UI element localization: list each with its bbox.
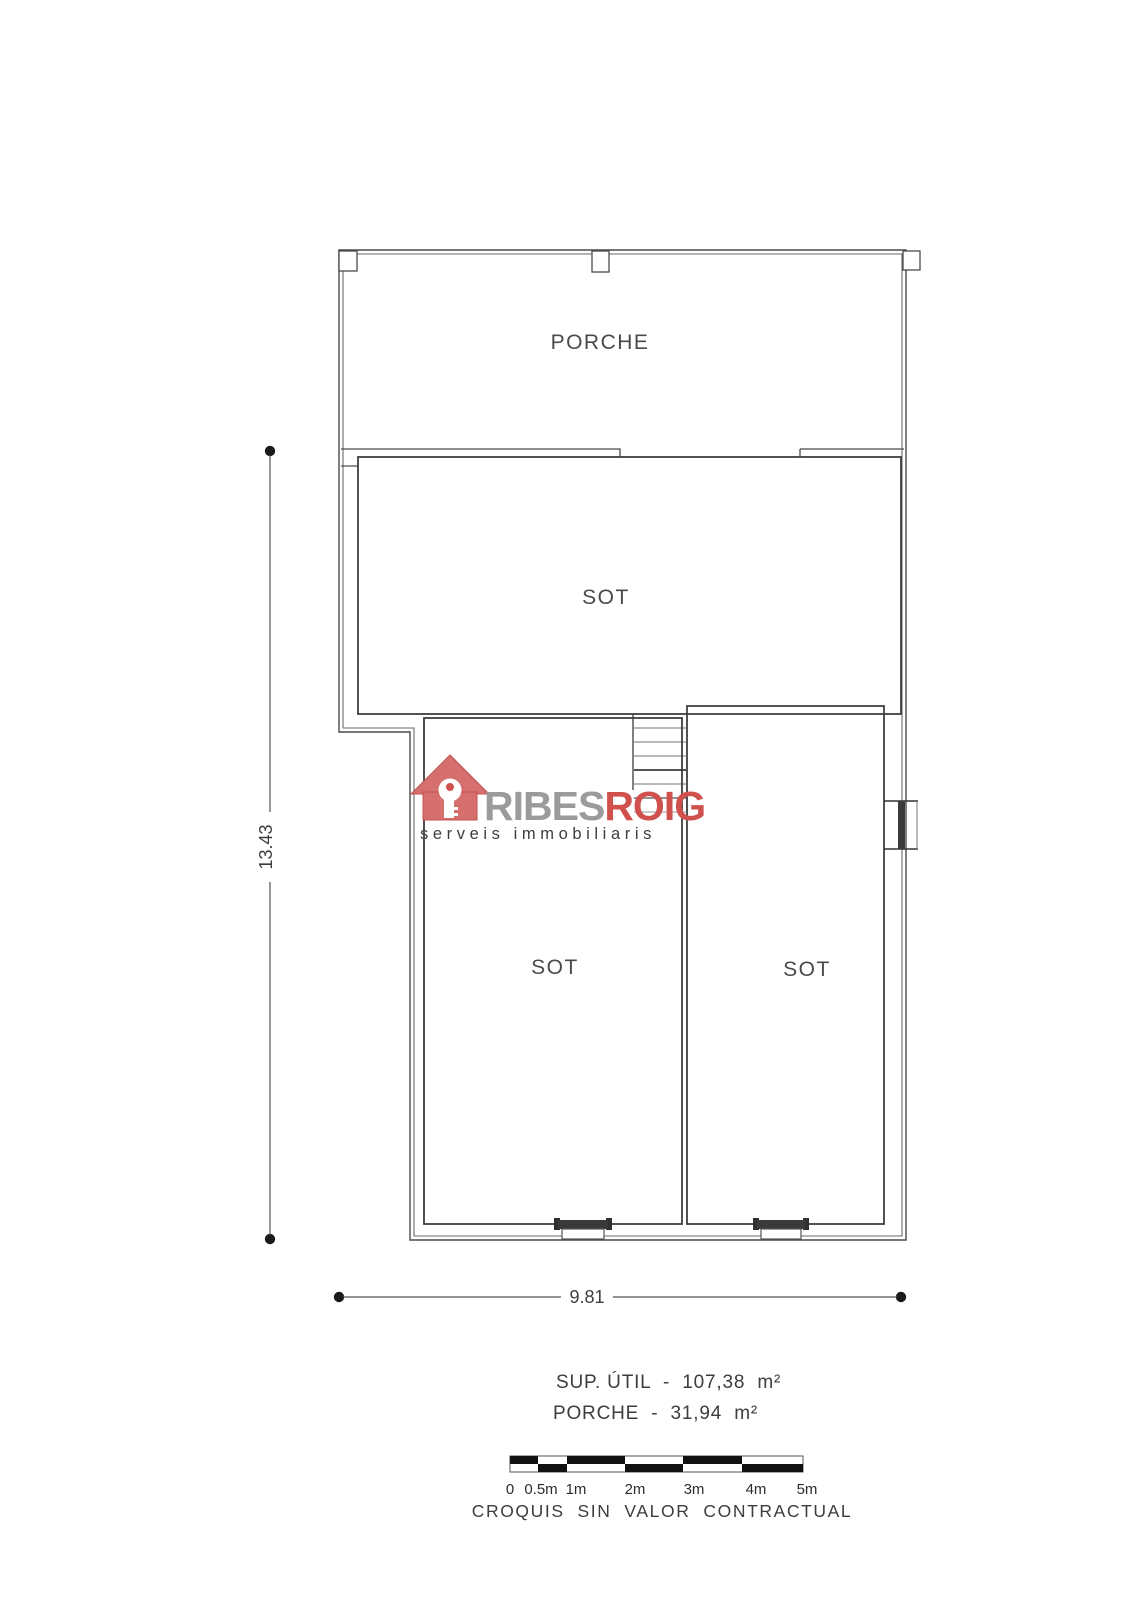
scale-label-05m: 0.5m — [524, 1481, 557, 1498]
scale-bar-segment — [510, 1456, 538, 1464]
brand-text-part2: ROIG — [604, 783, 705, 829]
sot-lower-left-label: SOT — [531, 956, 579, 979]
brand-text-part1: RIBES — [484, 783, 604, 829]
sot-upper-label: SOT — [582, 586, 630, 609]
scale-bar: 0 0.5m 1m 2m 3m 4m 5m — [506, 1456, 818, 1498]
scale-label-5m: 5m — [797, 1481, 818, 1498]
scale-label-1m: 1m — [566, 1481, 587, 1498]
agency-logo: RIBESROIG serveis immobiliaris — [411, 755, 705, 843]
window-right-wall — [884, 801, 918, 849]
scale-label-2m: 2m — [625, 1481, 646, 1498]
scale-bar-segment — [683, 1456, 742, 1464]
disclaimer-text: CROQUIS SIN VALOR CONTRACTUAL — [472, 1501, 853, 1521]
pillar-middle — [592, 251, 609, 272]
porch-label: PORCHE — [551, 331, 650, 354]
pillar-right — [903, 251, 920, 270]
dimension-vertical-value: 13.43 — [256, 824, 276, 869]
outer-wall-inner-line — [343, 254, 902, 1236]
house-key-icon — [411, 755, 489, 820]
window-bottom-left — [554, 1218, 612, 1239]
area-summary-line1: SUP. ÚTIL - 107,38 m² — [556, 1371, 781, 1393]
floor-plan-page: 13.43 9.81 PORCHE SOT SOT SOT RIBESROIG … — [0, 0, 1134, 1600]
area-summary-line2: PORCHE - 31,94 m² — [553, 1403, 758, 1424]
dimension-horizontal-value: 9.81 — [569, 1287, 604, 1307]
pillar-left — [339, 251, 357, 271]
scale-bar-segment — [625, 1464, 683, 1472]
floor-plan-svg: 13.43 9.81 PORCHE SOT SOT SOT RIBESROIG … — [0, 0, 1134, 1600]
scale-bar-segment — [567, 1456, 625, 1464]
brand-tagline: serveis immobiliaris — [420, 825, 656, 843]
scale-label-3m: 3m — [684, 1481, 705, 1498]
scale-bar-segment — [538, 1464, 567, 1472]
scale-label-0: 0 — [506, 1481, 514, 1498]
dimension-horizontal: 9.81 — [334, 1287, 906, 1307]
dimension-vertical: 13.43 — [256, 446, 276, 1244]
brand-text: RIBESROIG — [484, 783, 705, 829]
scale-label-4m: 4m — [746, 1481, 767, 1498]
sot-lower-right-label: SOT — [783, 958, 831, 981]
window-bottom-right — [753, 1218, 809, 1239]
scale-bar-segment — [742, 1464, 803, 1472]
